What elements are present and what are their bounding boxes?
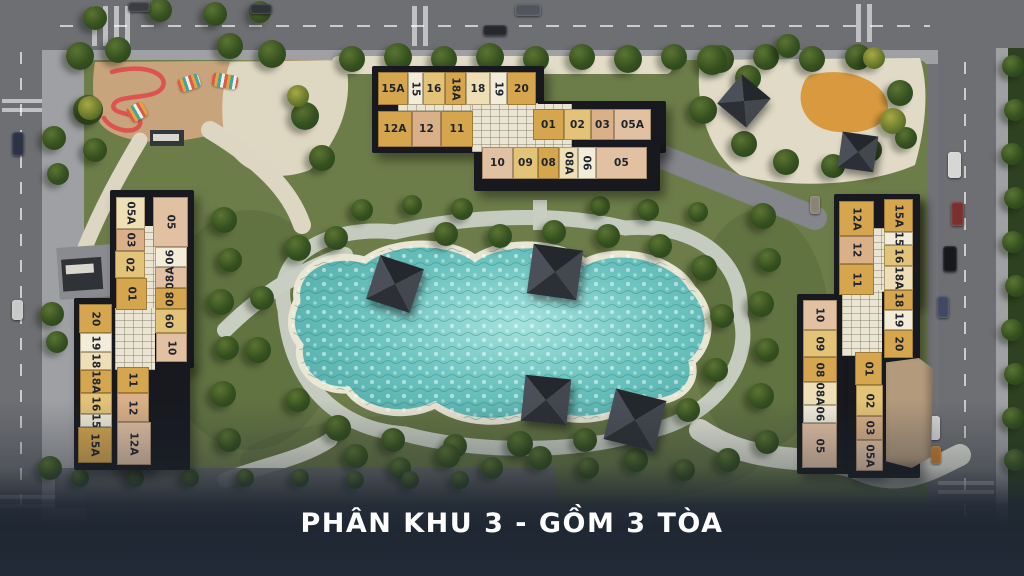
unit-01[interactable]: 01 bbox=[855, 352, 882, 385]
unit-19[interactable]: 19 bbox=[884, 310, 913, 330]
unit-12a[interactable]: 12A bbox=[839, 201, 874, 236]
unit-15[interactable]: 15 bbox=[884, 232, 913, 245]
caption-bar bbox=[0, 400, 1024, 576]
unit-11[interactable]: 11 bbox=[839, 264, 874, 295]
unit-15a[interactable]: 15A bbox=[884, 199, 913, 232]
unit-18[interactable]: 18 bbox=[884, 290, 913, 310]
unit-20[interactable]: 20 bbox=[884, 330, 913, 358]
unit-08[interactable]: 08 bbox=[803, 357, 837, 382]
site-plan-canvas: 15A151618A18192012A121101020305A10090808… bbox=[0, 0, 1024, 576]
unit-10[interactable]: 10 bbox=[803, 300, 837, 330]
unit-09[interactable]: 09 bbox=[803, 330, 837, 357]
unit-16[interactable]: 16 bbox=[884, 245, 913, 266]
unit-18a[interactable]: 18A bbox=[884, 266, 913, 290]
caption-title: PHÂN KHU 3 - GỒM 3 TÒA bbox=[0, 508, 1024, 539]
unit-12[interactable]: 12 bbox=[839, 236, 874, 264]
